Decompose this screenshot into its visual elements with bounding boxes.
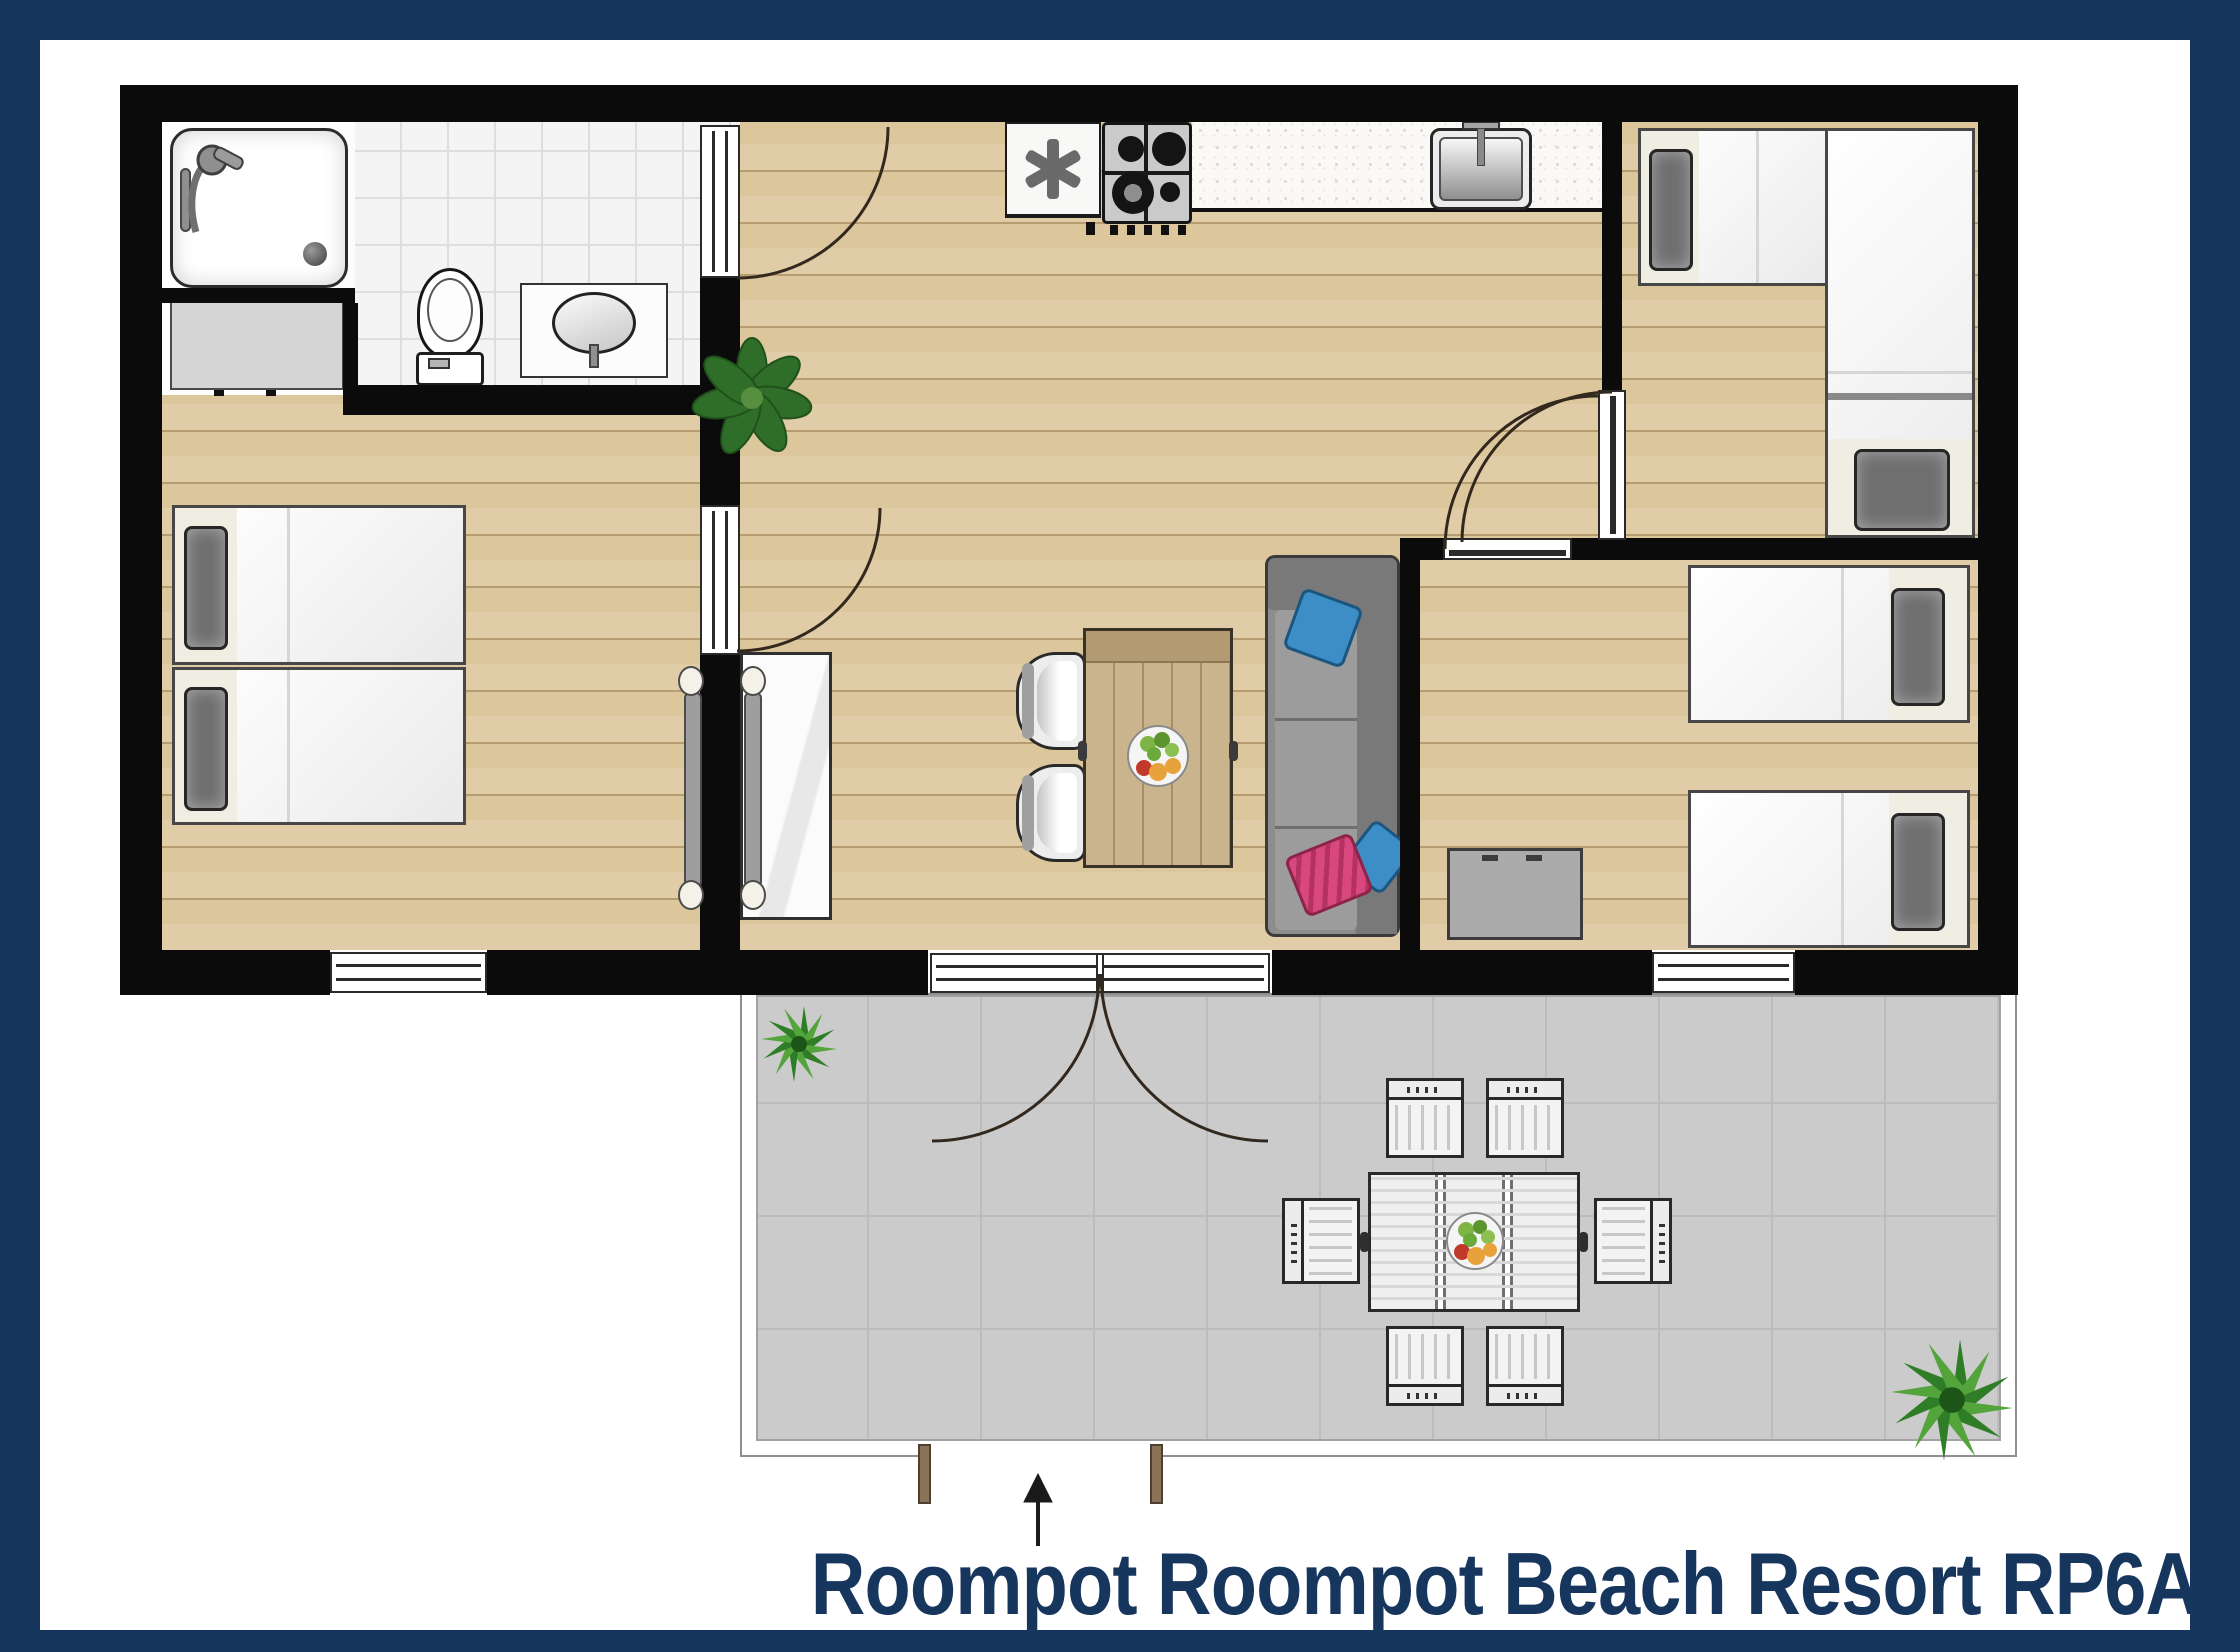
wardrobe-handle-living — [744, 692, 762, 888]
wardrobe-cap-2 — [678, 880, 704, 910]
bunk-bed-horizontal — [1638, 128, 1843, 286]
wall-bottom-1 — [120, 950, 330, 995]
shower-drain — [303, 242, 327, 266]
dining-chair-2 — [1016, 764, 1086, 862]
bed-left-2 — [172, 667, 466, 825]
window-bedroom-left — [330, 952, 487, 993]
page-title: Roompot Roompot Beach Resort RP6A — [811, 1538, 2200, 1630]
wall-bath-low — [700, 655, 740, 950]
wall-right — [1978, 85, 2018, 995]
bed-right-1 — [1688, 565, 1970, 723]
burner-4 — [1160, 182, 1180, 202]
wall-bottom-3 — [1272, 950, 1652, 995]
toilet-seat — [427, 278, 473, 342]
wall-living-rbedroom — [1400, 555, 1420, 950]
wall-left — [120, 85, 162, 995]
floorplan-image: Roompot Roompot Beach Resort RP6A — [0, 0, 2240, 1652]
entrance-post-left — [918, 1444, 931, 1504]
wardrobe-cap-3 — [740, 666, 766, 696]
outdoor-table — [1368, 1172, 1580, 1312]
wall-bottom-2 — [487, 950, 928, 995]
fan-symbol-icon — [1007, 124, 1099, 214]
wardrobe-cap-1 — [678, 666, 704, 696]
outdoor-table-handle-left — [1360, 1232, 1369, 1252]
shower-rail — [180, 168, 191, 232]
bunk-bed-vertical — [1825, 128, 1975, 538]
bed-right-2 — [1688, 790, 1970, 948]
wardrobe-cap-4 — [740, 880, 766, 910]
cabinet-foot-2 — [266, 390, 276, 396]
dining-chair-1 — [1016, 652, 1086, 750]
wall-top — [120, 85, 2018, 122]
wall-nook-right — [343, 303, 358, 385]
outdoor-table-handle-right — [1579, 1232, 1588, 1252]
outdoor-chair-top-1 — [1386, 1078, 1464, 1158]
dishwasher — [1005, 122, 1101, 218]
burner-3 — [1112, 172, 1154, 214]
outdoor-chair-bottom-2 — [1486, 1326, 1564, 1406]
entrance-post-right — [1150, 1444, 1163, 1504]
washing-machine-cabinet — [170, 300, 344, 390]
dining-table — [1083, 628, 1233, 868]
outdoor-chair-bottom-1 — [1386, 1326, 1464, 1406]
bed-left-1 — [172, 505, 466, 665]
door-bunk-room — [1598, 390, 1626, 540]
wall-bath-bottom — [343, 385, 740, 415]
hob-side-knob — [1086, 222, 1095, 235]
wall-bottom-4 — [1795, 950, 2018, 995]
burner-2 — [1152, 132, 1186, 166]
bedroom-cabinet — [1447, 848, 1583, 940]
bathroom-faucet — [589, 344, 599, 368]
kitchen-counter — [1192, 122, 1612, 212]
wardrobe-handle-bedroom — [684, 692, 702, 888]
wall-rbedroom-top — [1572, 538, 1978, 560]
wall-kitchen-bunk — [1602, 122, 1622, 390]
toilet-button — [428, 358, 450, 369]
outdoor-chair-left — [1282, 1198, 1360, 1284]
kitchen-faucet-stem — [1477, 128, 1485, 166]
outdoor-chair-right — [1594, 1198, 1672, 1284]
burner-1 — [1118, 136, 1144, 162]
wall-nook-stub — [120, 288, 355, 303]
hob-knobs — [1110, 225, 1188, 235]
cabinet-foot-1 — [214, 390, 224, 396]
door-bathroom — [700, 125, 740, 278]
door-bedroom-left — [700, 505, 740, 655]
door-bedroom-right — [1443, 538, 1572, 560]
french-doors-mullion — [1096, 953, 1104, 993]
toilet-tank — [416, 352, 484, 386]
window-bedroom-right — [1652, 952, 1795, 993]
outdoor-chair-top-2 — [1486, 1078, 1564, 1158]
terrace-entrance-gap — [925, 1441, 1157, 1463]
